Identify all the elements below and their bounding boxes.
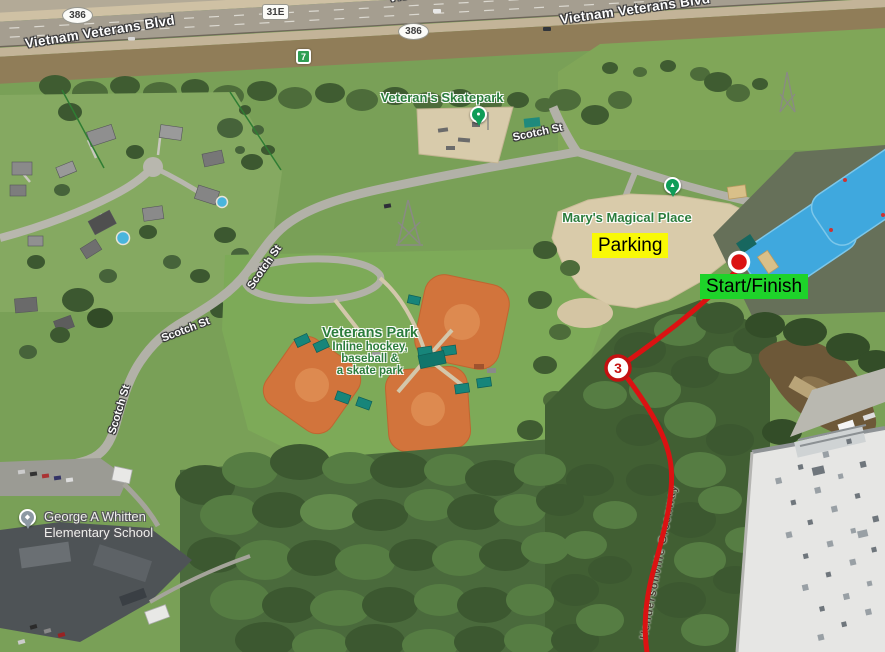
mile-marker-3-label: 3	[611, 360, 625, 376]
poi-label-skatepark[interactable]: Veteran's Skatepark	[372, 90, 512, 105]
poi-label-veterans-park[interactable]: Veterans Park Inline hockey, baseball & …	[297, 326, 443, 377]
parking-annotation: Parking	[592, 233, 668, 258]
route-shield-386-right: 386	[398, 23, 429, 40]
route-shield-7: 7	[296, 49, 311, 64]
school-name-line1: George A Whitten	[44, 509, 153, 525]
school-name-line2: Elementary School	[44, 525, 153, 541]
skatepark-pin[interactable]: ●	[470, 106, 487, 123]
route-shield-31e: 31E	[262, 4, 289, 20]
start-finish-dot	[730, 253, 749, 272]
start-finish-annotation: Start/Finish	[700, 274, 808, 299]
marys-magical-place-pin[interactable]: ▲	[664, 177, 681, 194]
school-pin[interactable]: ◆	[19, 509, 36, 526]
skate-icon: ●	[476, 111, 480, 118]
race-route-line	[619, 268, 739, 652]
veterans-park-sub2: baseball &	[297, 353, 443, 365]
graduation-cap-icon: ◆	[25, 514, 30, 521]
route-shield-386-left: 386	[62, 7, 93, 24]
veterans-park-sub3: a skate park	[297, 365, 443, 377]
poi-label-school[interactable]: George A Whitten Elementary School	[44, 509, 153, 540]
veterans-park-sub1: Inline hockey,	[297, 341, 443, 353]
tree-icon: ▲	[669, 182, 676, 189]
satellite-map: Hendersonville Greenway Vietnam Veterans…	[0, 0, 885, 652]
poi-label-marys-magical-place[interactable]: Mary's Magical Place	[557, 210, 697, 225]
veterans-park-title: Veterans Park	[297, 326, 443, 341]
